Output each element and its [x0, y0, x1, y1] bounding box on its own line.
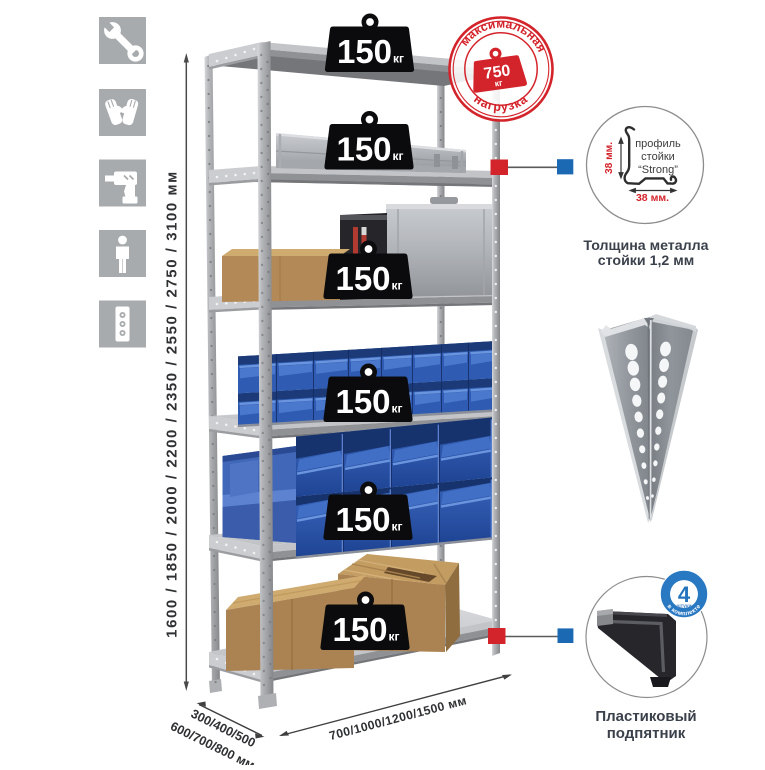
svg-text:1600 / 1850 / 2000 / 2200 / 23: 1600 / 1850 / 2000 / 2200 / 2350 / 2550 …	[164, 170, 181, 638]
svg-text:кг: кг	[391, 402, 402, 416]
svg-text:38 мм.: 38 мм.	[636, 192, 669, 204]
svg-text:150: 150	[335, 383, 390, 420]
svg-text:Толщина металла: Толщина металла	[583, 238, 708, 254]
svg-text:кг: кг	[388, 630, 399, 644]
svg-text:150: 150	[337, 33, 392, 70]
svg-text:150: 150	[336, 131, 391, 168]
svg-text:кг: кг	[393, 52, 404, 66]
svg-text:кг: кг	[391, 520, 402, 534]
svg-text:кг: кг	[391, 279, 402, 293]
svg-text:150: 150	[335, 260, 390, 297]
svg-text:подпятник: подпятник	[607, 725, 686, 742]
svg-text:кг: кг	[392, 149, 403, 163]
svg-text:стойки 1,2 мм: стойки 1,2 мм	[598, 253, 694, 269]
svg-text:Пластиковый: Пластиковый	[595, 708, 696, 725]
svg-text:профиль: профиль	[635, 138, 681, 150]
svg-text:стойки: стойки	[641, 151, 675, 163]
svg-text:штуки: штуки	[676, 604, 691, 610]
svg-text:38 мм.: 38 мм.	[604, 142, 615, 174]
svg-text:“Strong”: “Strong”	[638, 164, 678, 176]
svg-text:150: 150	[332, 611, 387, 648]
svg-text:150: 150	[335, 501, 390, 538]
